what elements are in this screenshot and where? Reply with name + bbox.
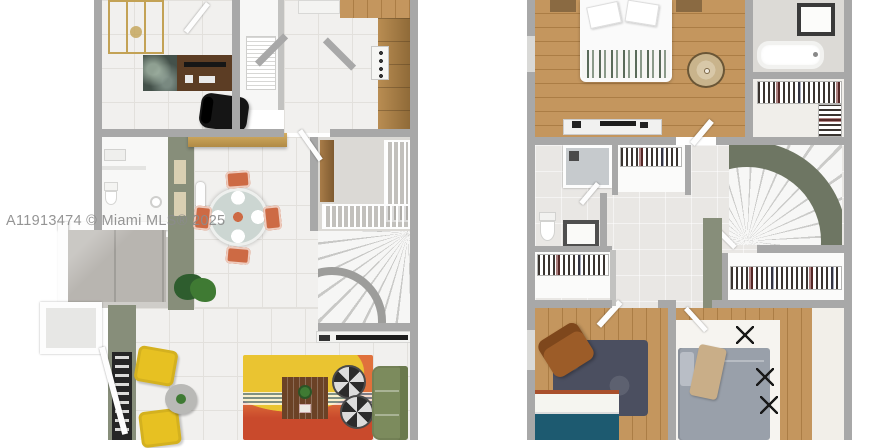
table-plant (298, 385, 312, 399)
desk (177, 55, 235, 91)
rug-center-dot (704, 68, 710, 74)
primary-bed (580, 0, 672, 82)
wall (278, 0, 284, 110)
sage-wall-hall (703, 218, 722, 308)
desk-marble-top (143, 55, 177, 91)
office-chair (198, 92, 250, 133)
floor-plan-image: A11913474 © Miami MLS® 2025 (0, 0, 890, 440)
stair-curved-wall (729, 145, 842, 245)
bed-duvet-teal (535, 414, 619, 440)
wall (318, 323, 410, 331)
cage-bar (144, 2, 146, 52)
wall (844, 0, 852, 440)
shower-head (569, 151, 579, 161)
wall (722, 253, 728, 300)
window (527, 330, 535, 370)
striped-blanket (582, 50, 670, 78)
sofa-seam (375, 414, 399, 416)
keyboard-tray (184, 62, 226, 67)
closet-rod-top (757, 81, 842, 104)
closet-cabinet (320, 140, 334, 202)
pillow (624, 0, 659, 26)
sofa-seam (375, 390, 399, 392)
nightstand (550, 0, 576, 12)
bedroom-2-floor-margin (812, 308, 844, 440)
wall (716, 137, 844, 145)
side-table-plant (176, 394, 186, 404)
patio-wall-left (58, 222, 68, 302)
wall (410, 0, 418, 440)
sofa (372, 366, 408, 440)
nightstand (676, 0, 702, 12)
desk-item (199, 76, 215, 83)
wall (612, 145, 618, 195)
bathroom-vanity (797, 3, 835, 36)
wall (94, 129, 284, 137)
wall (658, 300, 676, 308)
desk-item (185, 75, 193, 83)
wall-niche (174, 160, 186, 184)
spiral-staircase (729, 145, 842, 245)
wall (753, 72, 844, 79)
tv (600, 121, 636, 126)
window (527, 36, 535, 72)
bathtub (757, 41, 824, 69)
floor-plant (190, 278, 216, 302)
coffee-table (282, 377, 328, 419)
wall (685, 145, 691, 195)
vanity-sink (567, 224, 595, 244)
wall (712, 300, 844, 308)
chair-back (200, 96, 214, 124)
kitchen-upper-cabinet (298, 0, 340, 14)
table-book (299, 404, 311, 413)
round-jute-rug (687, 52, 725, 88)
wall (533, 246, 612, 252)
wall (757, 245, 844, 253)
bathroom-partition (100, 166, 146, 170)
armchair-yellow (133, 345, 179, 387)
cage-bar (126, 2, 128, 52)
wall (527, 137, 676, 145)
bed-3 (535, 390, 619, 440)
wire-shelf-bottom (322, 204, 410, 229)
watermark-text: A11913474 © Miami MLS® 2025 (6, 213, 225, 229)
bed-sheet (535, 394, 619, 414)
dining-chair (225, 246, 250, 265)
tv (336, 335, 408, 340)
toilet (104, 182, 118, 191)
entry-alcove (40, 302, 102, 354)
wireframe-chair (756, 368, 774, 386)
toilet-bowl (540, 221, 555, 241)
spiral-staircase (318, 231, 410, 323)
side-table (165, 384, 197, 414)
closet-rod (730, 266, 842, 290)
round-pouf (332, 365, 366, 399)
speaker (319, 335, 330, 341)
closet-rod-right (818, 104, 842, 137)
wall (600, 193, 607, 250)
bathroom-sink (104, 149, 126, 161)
dresser-item (572, 121, 581, 128)
toilet-bowl (105, 191, 117, 205)
pendant-light (150, 196, 162, 208)
closet-rod (537, 254, 609, 276)
vanity-sink (801, 7, 831, 32)
stove (371, 46, 389, 80)
pillow (586, 1, 622, 29)
tub-faucet (813, 52, 818, 57)
patio-floor (68, 230, 166, 302)
dining-chair (225, 170, 250, 189)
dresser-item (640, 122, 648, 128)
round-pouf (340, 395, 374, 429)
gold-cage-shelf (108, 0, 164, 54)
toilet (539, 212, 556, 221)
wall (232, 0, 240, 129)
wall (668, 308, 676, 440)
wall (533, 300, 612, 308)
wall (94, 0, 102, 230)
closet-rod (620, 147, 682, 167)
armchair-yellow (138, 408, 182, 448)
shower (563, 145, 612, 188)
wall (745, 0, 753, 137)
wall (330, 129, 410, 137)
stair-curved-wall (318, 267, 386, 323)
kitchen-counter-top (340, 0, 410, 18)
wall (610, 250, 616, 306)
wireframe-chair (736, 326, 754, 344)
dining-chair (263, 205, 282, 231)
bathroom-vanity (563, 220, 599, 248)
cage-ornament (130, 26, 142, 38)
wireframe-chair (760, 396, 778, 414)
